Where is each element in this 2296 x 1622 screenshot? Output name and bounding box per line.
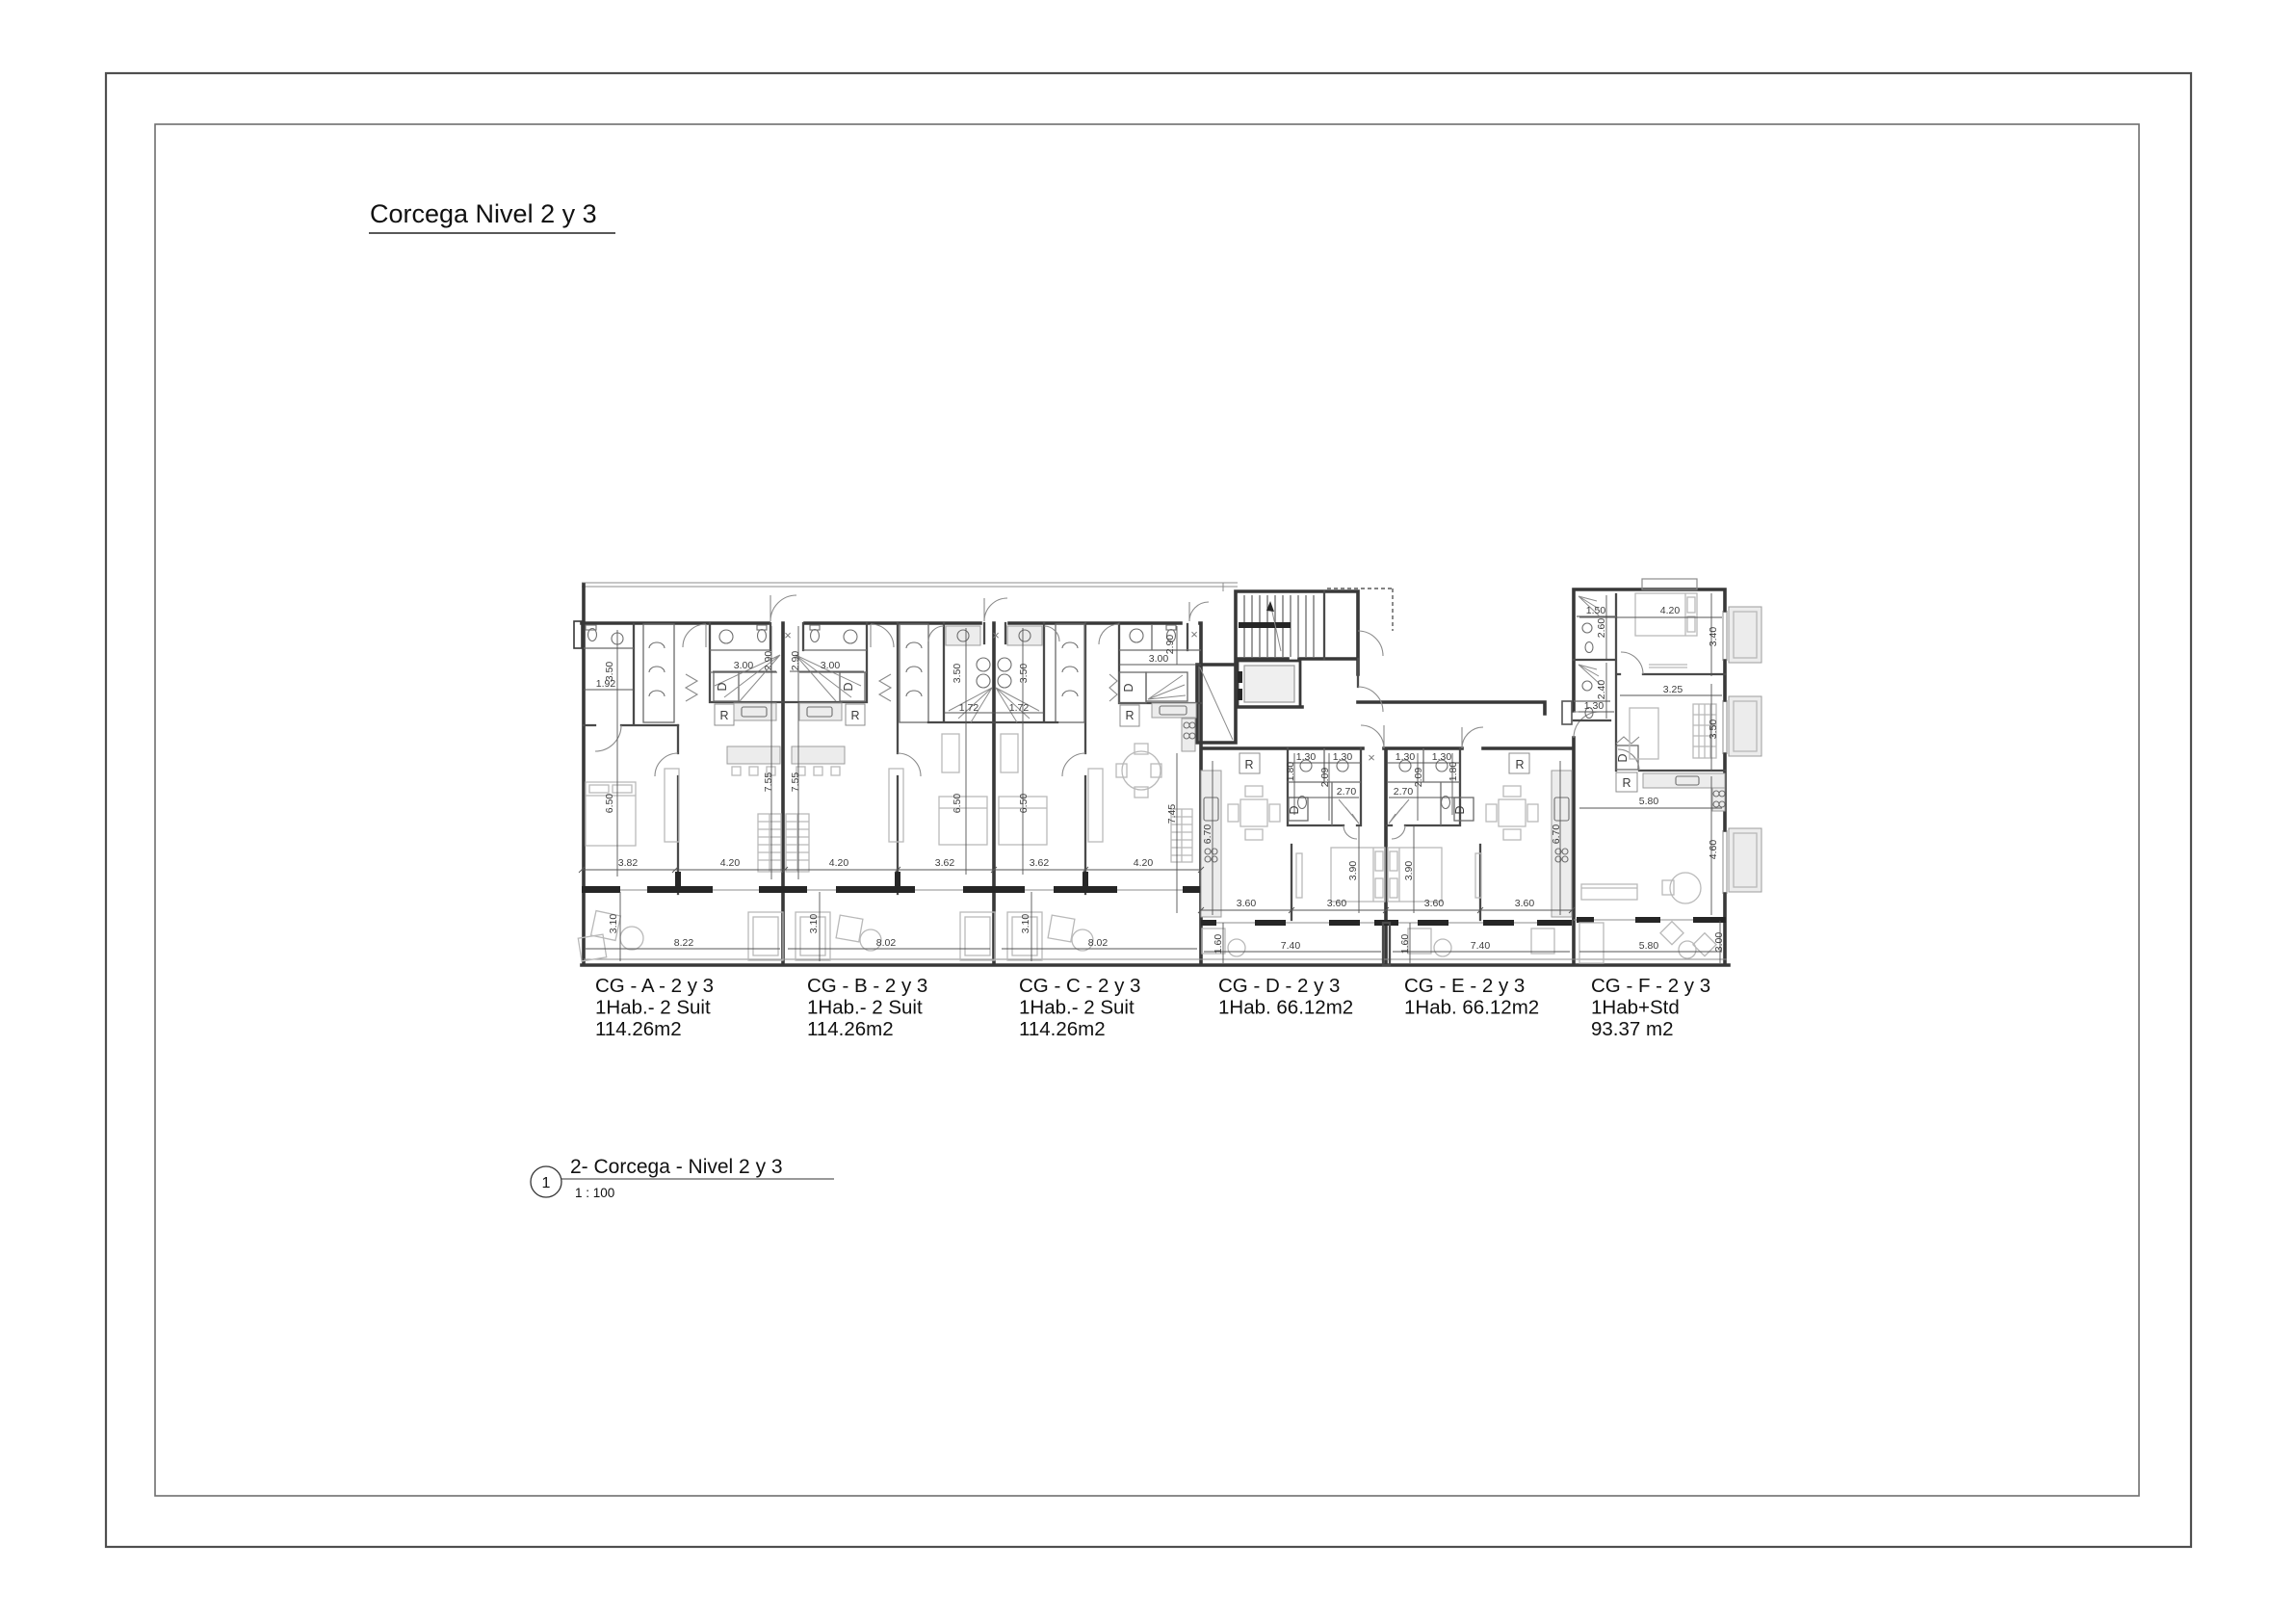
dimension-label: 3.25 [1663, 684, 1683, 695]
dimension-label: 7.55 [790, 772, 801, 793]
unit-label-line: CG - C - 2 y 3 [1019, 975, 1140, 997]
dimension-label: 4.20 [720, 857, 741, 869]
sheet-outer-border [106, 73, 2191, 1547]
dimension-label: 5.80 [1639, 940, 1659, 952]
door-x-mark: × [1368, 750, 1375, 765]
dimension-label: 3.10 [808, 914, 820, 934]
dimension-label: 8.02 [1088, 937, 1109, 949]
dimension-label: 3.90 [1403, 861, 1415, 881]
dimension-label: 4.20 [829, 857, 849, 869]
unit-label-cg-d: CG - D - 2 y 31Hab. 66.12m2 [1218, 975, 1353, 1019]
dimension-label: 1.72 [1009, 702, 1030, 714]
unit-label-line: 1Hab. 66.12m2 [1218, 997, 1353, 1019]
furniture [578, 593, 1716, 963]
dimension-label: 3.50 [952, 664, 963, 684]
dimension-label: 3.10 [608, 914, 619, 934]
dimension-label: 7.45 [1166, 804, 1178, 824]
dimension-label: 1.30 [1396, 751, 1416, 763]
dimension-label: 7.40 [1281, 940, 1301, 952]
dimension-label: 6.50 [604, 794, 615, 814]
dimension-label: 2.90 [790, 651, 801, 671]
unit-label-line: 114.26m2 [1019, 1018, 1106, 1040]
unit-label-line: 1Hab+Std [1591, 997, 1680, 1019]
dimension-label: 1.30 [1333, 751, 1353, 763]
unit-label-line: 1Hab. 66.12m2 [1404, 997, 1539, 1019]
dimension-label: 3.60 [1424, 898, 1445, 909]
dimension-label: 1.30 [1432, 751, 1452, 763]
dimension-label: 3.00 [1713, 932, 1725, 953]
sheet-title: Corcega Nivel 2 y 3 [370, 199, 597, 228]
unit-label-cg-e: CG - E - 2 y 31Hab. 66.12m2 [1404, 975, 1539, 1019]
appliance-letter: R [1244, 758, 1253, 772]
unit-a-bathroom [584, 624, 678, 725]
pod-e [1387, 727, 1529, 839]
appliance-letter: R [850, 709, 859, 722]
duplex-stairs [758, 809, 1192, 872]
dimension-label: 3.60 [1237, 898, 1257, 909]
dimension-label: 1.60 [1399, 934, 1411, 955]
door-x-mark: × [784, 628, 792, 642]
unit-label-line: 114.26m2 [807, 1018, 894, 1040]
dimension-label: 2.70 [1394, 786, 1414, 798]
dimension-label: 2.09 [1413, 768, 1424, 788]
callout-title: 2- Corcega - Nivel 2 y 3 [570, 1156, 783, 1178]
property-line [582, 583, 1238, 591]
dimension-label: 2.09 [1319, 768, 1331, 788]
appliance-letter: D [1616, 753, 1630, 762]
floor-plan-sheet: Corcega Nivel 2 y 3 [0, 0, 2296, 1622]
dimension-label: 7.55 [763, 772, 774, 793]
unit-label-line: CG - F - 2 y 3 [1591, 975, 1710, 997]
dimension-label: 2.40 [1596, 680, 1607, 700]
appliance-letter: R [719, 709, 728, 722]
dimension-label: 1.50 [1586, 605, 1606, 616]
dimension-label: 3.82 [618, 857, 639, 869]
appliance-letter: D [1288, 805, 1301, 814]
dimension-label: 2.60 [1596, 618, 1607, 639]
dimension-label: 6.50 [952, 794, 963, 814]
dimension-lines [579, 593, 1722, 963]
door-x-mark: × [992, 628, 1000, 642]
dimension-label: 4.60 [1708, 840, 1719, 860]
appliance-letter: R [1125, 709, 1134, 722]
unit-label-line: 93.37 m2 [1591, 1018, 1673, 1040]
dimension-label: 3.62 [935, 857, 955, 869]
dimension-label: 1.92 [596, 678, 616, 690]
dimension-label: 3.00 [821, 660, 841, 671]
dimension-label: 1.60 [1213, 934, 1224, 955]
dimension-label: 3.50 [1708, 719, 1719, 740]
unit-label-line: 1Hab.- 2 Suit [807, 997, 923, 1019]
dimension-label: 3.40 [1708, 627, 1719, 647]
unit-label-line: CG - E - 2 y 3 [1404, 975, 1525, 997]
unit-labels-layer: CG - A - 2 y 31Hab.- 2 Suit114.26m2CG - … [595, 975, 1710, 1040]
stair-run [1239, 595, 1314, 657]
unit-label-line: 1Hab.- 2 Suit [595, 997, 711, 1019]
dimension-label: 3.50 [1018, 664, 1030, 684]
dimension-label: 4.20 [1660, 605, 1681, 616]
unit-label-line: CG - A - 2 y 3 [595, 975, 714, 997]
dimension-label: 3.60 [1515, 898, 1535, 909]
unit-label-line: CG - D - 2 y 3 [1218, 975, 1340, 997]
dimension-label: 3.62 [1030, 857, 1050, 869]
appliance-letter: D [716, 682, 729, 691]
dimension-label: 8.22 [674, 937, 694, 949]
unit-label-cg-b: CG - B - 2 y 31Hab.- 2 Suit114.26m2 [807, 975, 927, 1040]
dimension-label: 8.02 [876, 937, 897, 949]
dimension-label: 6.50 [1018, 794, 1030, 814]
drawing-sheet-page: Corcega Nivel 2 y 3 [0, 0, 2296, 1622]
elevator [1238, 661, 1300, 707]
unit-label-line: 114.26m2 [595, 1018, 682, 1040]
dimension-label: 1.30 [1296, 751, 1317, 763]
appliance-letter: R [1622, 776, 1631, 790]
dimension-label: 3.10 [1020, 914, 1031, 934]
dimension-label: 3.90 [1347, 861, 1359, 881]
dimension-label: 2.90 [1164, 635, 1176, 655]
appliance-letter: D [842, 682, 855, 691]
dimension-label: 4.20 [1134, 857, 1154, 869]
pod-d [1239, 725, 1384, 839]
appliance-letter: R [1515, 758, 1524, 772]
door-x-mark: × [1190, 627, 1198, 641]
view-callout: 1 2- Corcega - Nivel 2 y 3 1 : 100 [531, 1156, 834, 1200]
dimension-label: 2.90 [763, 651, 774, 671]
floor-plan: 3.824.204.203.623.624.203.603.603.603.60… [574, 579, 1761, 1040]
balconette-boxes [1729, 607, 1761, 892]
unit-label-line: CG - B - 2 y 3 [807, 975, 927, 997]
dimension-label: 6.70 [1202, 824, 1213, 845]
dimension-label: 1.72 [959, 702, 979, 714]
stair-block [1197, 589, 1600, 743]
appliance-letter: D [1453, 805, 1467, 814]
unit-label-cg-a: CG - A - 2 y 31Hab.- 2 Suit114.26m2 [595, 975, 714, 1040]
dimension-label: 1.80 [1285, 762, 1296, 782]
unit-label-line: 1Hab.- 2 Suit [1019, 997, 1135, 1019]
dimension-label: 7.40 [1471, 940, 1491, 952]
dimension-label: 6.70 [1551, 824, 1562, 845]
dimension-label: 5.80 [1639, 796, 1659, 807]
sheet-inner-border [155, 124, 2139, 1496]
callout-scale: 1 : 100 [575, 1186, 614, 1200]
dimension-label: 1.80 [1448, 762, 1459, 782]
callout-number: 1 [542, 1175, 551, 1191]
appliance-letter: D [1122, 683, 1135, 692]
unit-f-interior [1574, 594, 1727, 894]
dimension-label: 3.00 [734, 660, 754, 671]
unit-label-cg-c: CG - C - 2 y 31Hab.- 2 Suit114.26m2 [1019, 975, 1140, 1040]
dimension-label: 3.60 [1327, 898, 1347, 909]
dimension-label: 1.30 [1584, 700, 1605, 712]
unit-label-cg-f: CG - F - 2 y 31Hab+Std93.37 m2 [1591, 975, 1710, 1040]
dimension-label: 2.70 [1337, 786, 1357, 798]
